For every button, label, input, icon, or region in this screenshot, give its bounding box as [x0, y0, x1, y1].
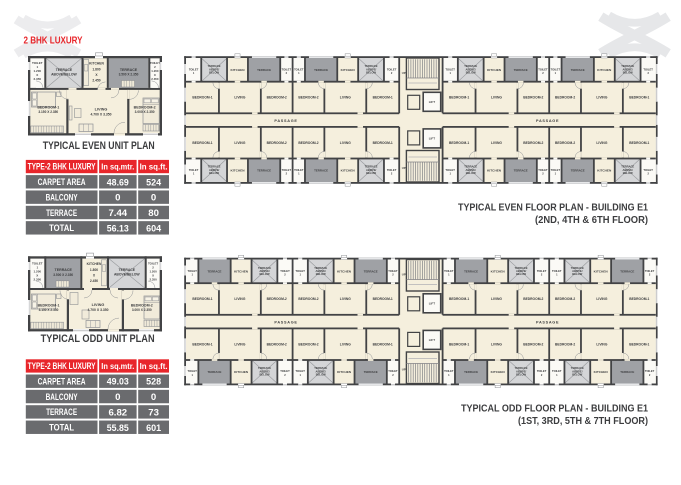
svg-text:LIVING: LIVING — [340, 96, 351, 100]
svg-text:TOILET: TOILET — [295, 369, 305, 373]
svg-text:ABOVE/BELOW: ABOVE/BELOW — [51, 72, 77, 76]
svg-text:BEDROOM-1: BEDROOM-1 — [629, 141, 649, 145]
svg-text:BELOW: BELOW — [572, 272, 582, 276]
svg-text:TERRACE: TERRACE — [620, 370, 634, 374]
svg-text:KITCHEN: KITCHEN — [594, 370, 608, 374]
svg-text:BELOW: BELOW — [572, 373, 582, 377]
svg-text:80: 80 — [148, 208, 159, 219]
svg-text:UP: UP — [402, 368, 406, 372]
svg-text:BELOW: BELOW — [259, 373, 269, 377]
svg-text:48.69: 48.69 — [107, 177, 129, 188]
svg-text:524: 524 — [146, 177, 162, 188]
svg-text:2.350: 2.350 — [34, 77, 42, 81]
svg-text:2.350: 2.350 — [151, 77, 159, 81]
svg-text:CARPET AREA: CARPET AREA — [38, 377, 86, 388]
svg-text:3.000 X 2.350: 3.000 X 2.350 — [132, 308, 152, 312]
svg-text:LIFT: LIFT — [429, 100, 435, 104]
svg-text:BEDROOM-1: BEDROOM-1 — [192, 96, 212, 100]
svg-text:3.150 X 2.350: 3.150 X 2.350 — [38, 110, 58, 114]
svg-text:BEDROOM-1: BEDROOM-1 — [373, 342, 393, 346]
svg-text:4.700 X 3.350: 4.700 X 3.350 — [87, 308, 108, 312]
svg-text:KITCHEN: KITCHEN — [491, 270, 505, 274]
svg-text:TOILET: TOILET — [282, 67, 292, 71]
svg-text:BELOW: BELOW — [209, 171, 219, 175]
svg-text:LIVING: LIVING — [92, 303, 105, 307]
svg-text:TOILET: TOILET — [538, 67, 548, 71]
svg-text:BEDROOM-2: BEDROOM-2 — [523, 96, 543, 100]
svg-text:LIVING: LIVING — [340, 141, 351, 145]
svg-text:KITCHEN: KITCHEN — [337, 370, 351, 374]
svg-text:KITCHEN: KITCHEN — [597, 68, 611, 72]
svg-text:KITCHEN: KITCHEN — [234, 370, 248, 374]
svg-text:BELOW: BELOW — [623, 171, 633, 175]
svg-text:TOILET: TOILET — [445, 67, 455, 71]
svg-text:BELOW: BELOW — [259, 272, 269, 276]
svg-text:BEDROOM-1: BEDROOM-1 — [37, 105, 59, 109]
svg-text:UP: UP — [402, 166, 406, 170]
svg-text:BEDROOM-2: BEDROOM-2 — [523, 297, 543, 301]
svg-text:BEDROOM-1: BEDROOM-1 — [38, 304, 60, 308]
svg-text:0: 0 — [115, 193, 120, 204]
svg-text:TOILET: TOILET — [280, 369, 290, 373]
svg-text:BELOW: BELOW — [366, 71, 376, 75]
svg-text:TERRACE: TERRACE — [314, 168, 328, 172]
svg-text:TERRACE: TERRACE — [119, 268, 136, 272]
svg-text:TYPICAL EVEN FLOOR PLAN - BUIL: TYPICAL EVEN FLOOR PLAN - BUILDING E1 — [458, 203, 648, 214]
svg-text:TOILET: TOILET — [645, 369, 655, 373]
svg-text:KITCHEN: KITCHEN — [597, 168, 611, 172]
svg-text:TOILET: TOILET — [552, 369, 562, 373]
svg-text:BEDROOM-1: BEDROOM-1 — [192, 297, 212, 301]
svg-text:BEDROOM-2: BEDROOM-2 — [555, 342, 575, 346]
svg-text:LIVING: LIVING — [340, 297, 351, 301]
svg-text:UP: UP — [402, 273, 406, 277]
svg-text:PASSAGE: PASSAGE — [536, 119, 559, 123]
svg-text:2.450: 2.450 — [92, 79, 100, 83]
svg-text:KITCHEN: KITCHEN — [487, 68, 501, 72]
svg-text:TOILET: TOILET — [388, 269, 398, 273]
svg-text:TOTAL: TOTAL — [49, 423, 74, 434]
svg-text:TOILET: TOILET — [387, 168, 397, 172]
svg-text:BELOW: BELOW — [623, 71, 633, 75]
svg-text:CARPET AREA: CARPET AREA — [38, 177, 86, 188]
svg-text:TERRACE: TERRACE — [364, 270, 378, 274]
svg-text:LIVING: LIVING — [596, 342, 607, 346]
svg-text:604: 604 — [146, 223, 162, 234]
svg-text:LIVING: LIVING — [491, 141, 502, 145]
svg-text:In sq.ft.: In sq.ft. — [140, 361, 168, 371]
svg-text:3.500 X 2.350: 3.500 X 2.350 — [119, 73, 139, 77]
svg-text:In sq.mtr.: In sq.mtr. — [101, 162, 134, 172]
svg-text:TOILET: TOILET — [538, 168, 548, 172]
svg-text:KITCHEN: KITCHEN — [337, 270, 351, 274]
svg-text:BEDROOM-1: BEDROOM-1 — [449, 141, 469, 145]
svg-text:BEDROOM-1: BEDROOM-1 — [373, 141, 393, 145]
svg-text:49.03: 49.03 — [107, 377, 129, 388]
svg-text:TYPE-2 BHK LUXURY: TYPE-2 BHK LUXURY — [28, 162, 96, 172]
svg-text:TOILET: TOILET — [444, 369, 454, 373]
svg-text:TERRACE: TERRACE — [46, 208, 77, 219]
svg-text:LIVING: LIVING — [340, 342, 351, 346]
svg-text:601: 601 — [146, 423, 162, 434]
svg-text:0: 0 — [151, 392, 156, 403]
svg-text:TYPICAL EVEN UNIT PLAN: TYPICAL EVEN UNIT PLAN — [43, 140, 155, 152]
svg-text:BELOW: BELOW — [209, 71, 219, 75]
svg-text:BEDROOM-2: BEDROOM-2 — [555, 141, 575, 145]
svg-text:KITCHEN: KITCHEN — [89, 62, 104, 66]
svg-text:LIVING: LIVING — [234, 96, 245, 100]
svg-text:BEDROOM-1: BEDROOM-1 — [629, 96, 649, 100]
svg-text:BEDROOM-1: BEDROOM-1 — [373, 96, 393, 100]
svg-text:TOILET: TOILET — [643, 67, 653, 71]
svg-text:55.85: 55.85 — [107, 423, 130, 434]
svg-text:LIVING: LIVING — [491, 96, 502, 100]
svg-text:LIVING: LIVING — [491, 342, 502, 346]
svg-text:BELOW: BELOW — [316, 373, 326, 377]
svg-text:3.500 X 2.350: 3.500 X 2.350 — [53, 273, 73, 277]
svg-text:TOILET: TOILET — [280, 269, 290, 273]
svg-text:BEDROOM-2: BEDROOM-2 — [298, 141, 318, 145]
svg-text:TERRACE: TERRACE — [620, 270, 634, 274]
svg-text:TERRACE: TERRACE — [364, 370, 378, 374]
svg-text:TOILET: TOILET — [388, 369, 398, 373]
svg-text:BELOW: BELOW — [516, 373, 526, 377]
svg-text:LIVING: LIVING — [234, 342, 245, 346]
svg-text:2.450: 2.450 — [90, 279, 98, 283]
svg-text:TERRACE: TERRACE — [571, 68, 585, 72]
svg-text:LIVING: LIVING — [596, 96, 607, 100]
svg-text:TOILET: TOILET — [551, 67, 561, 71]
svg-text:4.700 X 3.350: 4.700 X 3.350 — [90, 113, 111, 117]
svg-text:TOILET: TOILET — [188, 369, 198, 373]
svg-text:BALCONY: BALCONY — [46, 193, 78, 204]
svg-text:BELOW: BELOW — [516, 272, 526, 276]
svg-text:TOILET: TOILET — [445, 168, 455, 172]
svg-text:BELOW: BELOW — [466, 171, 476, 175]
svg-text:1.800: 1.800 — [92, 68, 100, 72]
svg-text:TERRACE: TERRACE — [257, 68, 271, 72]
svg-text:KITCHEN: KITCHEN — [234, 270, 248, 274]
svg-text:BEDROOM-1: BEDROOM-1 — [373, 297, 393, 301]
svg-text:7.44: 7.44 — [108, 208, 127, 219]
svg-text:LIFT: LIFT — [429, 301, 435, 305]
svg-text:TERRACE: TERRACE — [314, 68, 328, 72]
svg-text:TOILET: TOILET — [188, 269, 198, 273]
svg-text:KITCHEN: KITCHEN — [231, 168, 245, 172]
svg-text:BEDROOM-2: BEDROOM-2 — [298, 96, 318, 100]
svg-text:TOILET: TOILET — [444, 269, 454, 273]
svg-text:BELOW: BELOW — [316, 272, 326, 276]
svg-text:LIVING: LIVING — [234, 141, 245, 145]
svg-text:3.150 X 2.350: 3.150 X 2.350 — [39, 308, 59, 312]
svg-text:TERRACE: TERRACE — [120, 68, 138, 72]
svg-text:TYPICAL ODD UNIT PLAN: TYPICAL ODD UNIT PLAN — [41, 333, 155, 345]
svg-text:LIVING: LIVING — [491, 297, 502, 301]
svg-text:BALCONY: BALCONY — [46, 392, 78, 403]
svg-text:TERRACE: TERRACE — [208, 370, 222, 374]
svg-text:TERRACE: TERRACE — [56, 68, 73, 72]
svg-text:PASSAGE: PASSAGE — [274, 119, 297, 123]
svg-text:2.350: 2.350 — [149, 278, 157, 282]
svg-text:TYPICAL ODD FLOOR PLAN - BUILD: TYPICAL ODD FLOOR PLAN - BUILDING E1 — [461, 404, 648, 415]
svg-text:TERRACE: TERRACE — [514, 168, 528, 172]
svg-text:In sq.ft.: In sq.ft. — [140, 162, 168, 172]
svg-text:BEDROOM-2: BEDROOM-2 — [134, 105, 156, 109]
svg-text:BEDROOM-2: BEDROOM-2 — [523, 141, 543, 145]
svg-text:BEDROOM-1: BEDROOM-1 — [629, 297, 649, 301]
svg-text:0: 0 — [115, 392, 120, 403]
svg-text:TOILET: TOILET — [294, 67, 304, 71]
svg-text:BEDROOM-2: BEDROOM-2 — [267, 141, 287, 145]
svg-text:PASSAGE: PASSAGE — [274, 320, 297, 324]
svg-text:KITCHEN: KITCHEN — [231, 68, 245, 72]
svg-text:(1ST, 3RD, 5TH & 7TH FLOOR): (1ST, 3RD, 5TH & 7TH FLOOR) — [518, 416, 648, 427]
svg-text:1.800: 1.800 — [90, 268, 98, 272]
svg-text:3.000 X 2.350: 3.000 X 2.350 — [135, 110, 155, 114]
svg-text:TOILET: TOILET — [189, 168, 199, 172]
svg-text:BELOW: BELOW — [366, 171, 376, 175]
svg-text:BEDROOM-2: BEDROOM-2 — [298, 342, 318, 346]
svg-text:TOILET: TOILET — [551, 168, 561, 172]
svg-text:TOILET: TOILET — [387, 67, 397, 71]
svg-text:KITCHEN: KITCHEN — [341, 68, 355, 72]
svg-text:TERRACE: TERRACE — [571, 168, 585, 172]
svg-text:TOILET: TOILET — [537, 269, 547, 273]
svg-text:ABOVE/BELOW: ABOVE/BELOW — [114, 273, 140, 277]
svg-text:TOILET: TOILET — [294, 168, 304, 172]
svg-text:BEDROOM-2: BEDROOM-2 — [555, 297, 575, 301]
svg-text:TERRACE: TERRACE — [257, 168, 271, 172]
svg-text:BEDROOM-2: BEDROOM-2 — [523, 342, 543, 346]
svg-text:TOILET: TOILET — [189, 67, 199, 71]
svg-text:TOILET: TOILET — [282, 168, 292, 172]
svg-text:KITCHEN: KITCHEN — [594, 270, 608, 274]
svg-text:PASSAGE: PASSAGE — [536, 320, 559, 324]
svg-text:BEDROOM-2: BEDROOM-2 — [298, 297, 318, 301]
svg-text:LIVING: LIVING — [234, 297, 245, 301]
svg-text:BEDROOM-2: BEDROOM-2 — [267, 342, 287, 346]
svg-text:0: 0 — [151, 193, 156, 204]
svg-text:TERRACE: TERRACE — [514, 68, 528, 72]
svg-text:KITCHEN: KITCHEN — [87, 262, 102, 266]
svg-text:528: 528 — [146, 377, 162, 388]
svg-text:KITCHEN: KITCHEN — [491, 370, 505, 374]
svg-text:(2ND, 4TH & 6TH FLOOR): (2ND, 4TH & 6TH FLOOR) — [535, 215, 648, 226]
svg-text:TERRACE: TERRACE — [55, 268, 73, 272]
svg-text:LIFT: LIFT — [429, 136, 435, 140]
svg-text:TERRACE: TERRACE — [464, 270, 478, 274]
svg-text:BEDROOM-2: BEDROOM-2 — [267, 96, 287, 100]
svg-text:BEDROOM-2: BEDROOM-2 — [267, 297, 287, 301]
svg-text:LIVING: LIVING — [95, 108, 108, 112]
svg-text:BEDROOM-1: BEDROOM-1 — [449, 96, 469, 100]
svg-text:BEDROOM-2: BEDROOM-2 — [555, 96, 575, 100]
svg-text:BELOW: BELOW — [466, 71, 476, 75]
svg-text:TERRACE: TERRACE — [208, 270, 222, 274]
svg-text:TOILET: TOILET — [295, 269, 305, 273]
svg-text:BEDROOM-1: BEDROOM-1 — [192, 342, 212, 346]
svg-text:TOTAL: TOTAL — [49, 223, 74, 234]
svg-text:BEDROOM-1: BEDROOM-1 — [449, 297, 469, 301]
svg-text:TOILET: TOILET — [645, 269, 655, 273]
svg-text:KITCHEN: KITCHEN — [487, 168, 501, 172]
svg-text:In sq.mtr.: In sq.mtr. — [101, 361, 134, 371]
svg-text:TOILET: TOILET — [537, 369, 547, 373]
svg-text:UP: UP — [402, 71, 406, 75]
svg-text:BEDROOM-1: BEDROOM-1 — [192, 141, 212, 145]
svg-text:TOILET: TOILET — [643, 168, 653, 172]
svg-text:LIVING: LIVING — [596, 297, 607, 301]
svg-text:LIFT: LIFT — [429, 338, 435, 342]
svg-text:73: 73 — [148, 407, 159, 418]
svg-text:TERRACE: TERRACE — [46, 407, 77, 418]
svg-text:BEDROOM-1: BEDROOM-1 — [629, 342, 649, 346]
svg-text:56.13: 56.13 — [107, 223, 129, 234]
svg-text:KITCHEN: KITCHEN — [341, 168, 355, 172]
svg-text:BEDROOM-2: BEDROOM-2 — [131, 304, 153, 308]
svg-text:LIVING: LIVING — [596, 141, 607, 145]
svg-text:TYPE-2 BHK LUXURY: TYPE-2 BHK LUXURY — [28, 361, 96, 371]
svg-text:TERRACE: TERRACE — [464, 370, 478, 374]
svg-text:6.82: 6.82 — [108, 407, 127, 418]
svg-text:TOILET: TOILET — [552, 269, 562, 273]
svg-text:BEDROOM-1: BEDROOM-1 — [449, 342, 469, 346]
svg-text:2 BHK LUXURY: 2 BHK LUXURY — [24, 35, 83, 47]
